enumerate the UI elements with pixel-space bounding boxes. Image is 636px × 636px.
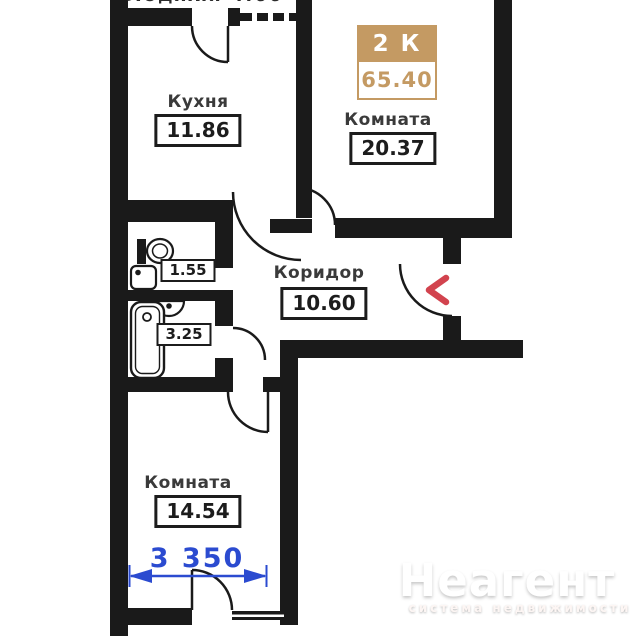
watermark-logo: Неагент <box>398 554 616 607</box>
wc-right-wall <box>215 200 233 268</box>
area-box-kitchen: 11.86 <box>154 114 241 147</box>
room-label-corridor: Коридор <box>274 263 365 283</box>
room-bottom-door-arc <box>228 392 268 432</box>
area-box-corridor: 10.60 <box>280 287 367 320</box>
bottom-wall-right <box>284 608 298 625</box>
bath-door-arc <box>233 328 265 360</box>
balcony-door-arc <box>192 26 228 62</box>
badge-rooms-count: 2 К <box>359 27 435 62</box>
dimension-value: 3 350 <box>150 543 245 574</box>
room-label-room-top: Комната <box>344 110 432 130</box>
room-top-bottom-wall <box>335 218 512 238</box>
left-exterior-wall <box>110 0 128 636</box>
top-wall-jamb <box>228 8 240 26</box>
top-wall-left <box>110 8 192 26</box>
apartment-badge: 2 К 65.40 <box>357 25 437 100</box>
room-bottom-right-wall <box>280 340 298 625</box>
cut-label-top-text: Лоджия 4.66 <box>127 0 284 6</box>
watermark-subtitle: система недвижимости <box>409 601 632 615</box>
area-box-wc: 1.55 <box>160 259 215 282</box>
bath-bottom-stub <box>263 377 280 392</box>
room-label-room-bottom: Комната <box>144 473 232 493</box>
bottom-wall-left <box>110 608 192 625</box>
area-box-bath: 3.25 <box>156 323 211 346</box>
room-label-kitchen: Кухня <box>167 92 228 112</box>
kitchen-bottom-wall <box>110 200 233 222</box>
floor-plan: Лоджия 4.66 2 К 65.40 Кухня 11.86 Комнат… <box>0 0 636 636</box>
entrance-jamb-bottom <box>443 316 461 346</box>
entrance-jamb-top <box>443 238 461 264</box>
area-box-room-bottom: 14.54 <box>154 495 241 528</box>
badge-total-area: 65.40 <box>359 62 435 98</box>
wc-bath-divider-wall <box>128 290 233 301</box>
bath-bottom-wall <box>110 377 227 392</box>
window-top <box>240 13 300 21</box>
cut-label-top: Лоджия 4.66 <box>127 0 284 7</box>
wc-sink-icon <box>131 266 156 289</box>
entrance-arrow-icon <box>429 278 446 302</box>
window-bottom <box>232 611 284 620</box>
kitchen-room-divider-wall <box>296 0 312 218</box>
area-box-room-top: 20.37 <box>349 132 436 165</box>
right-exterior-wall <box>494 0 512 238</box>
corridor-bottom-wall <box>287 340 523 358</box>
divider-wall-foot <box>270 219 312 233</box>
